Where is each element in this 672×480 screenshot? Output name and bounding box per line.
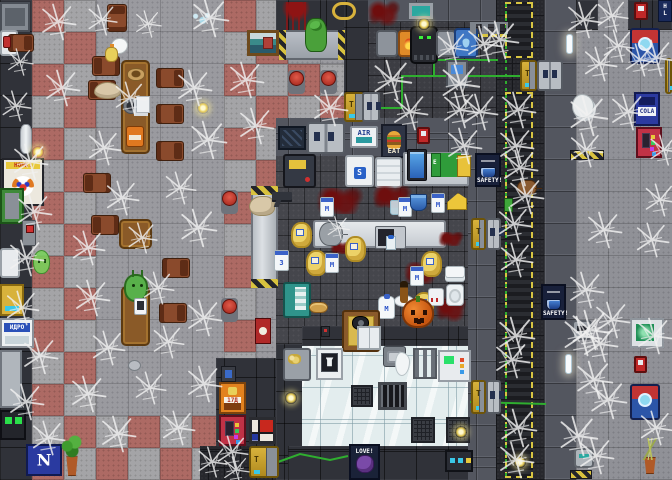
vendor-cola-label: COLA <box>638 107 656 116</box>
wood-chair[interactable] <box>156 104 184 124</box>
floor-tile <box>160 416 192 448</box>
machine-popcorn[interactable] <box>283 348 311 381</box>
floor-tile <box>32 96 64 128</box>
bot-clean[interactable] <box>574 448 594 468</box>
spark <box>455 426 467 438</box>
floor-tile <box>160 448 192 480</box>
jar-blue[interactable] <box>386 236 396 250</box>
door-yellow-label: T <box>349 101 354 108</box>
floor-tile <box>64 128 96 160</box>
grate[interactable] <box>351 385 373 407</box>
door-double[interactable] <box>307 122 345 154</box>
door-gray[interactable] <box>537 60 563 91</box>
machine-bluered[interactable] <box>630 28 660 64</box>
poster-love-label: LOVE! <box>351 448 378 455</box>
floor-tile <box>32 0 64 32</box>
door-yellow[interactable]: T <box>520 60 537 91</box>
vendor-hydro[interactable]: ИДРО <box>0 318 34 348</box>
stool-red[interactable] <box>288 70 305 94</box>
floor-tile <box>32 32 64 64</box>
door-gray[interactable] <box>486 380 501 414</box>
chicken[interactable] <box>291 222 312 248</box>
gun[interactable] <box>272 192 292 202</box>
milk[interactable]: M <box>320 197 334 217</box>
painting-landscape[interactable] <box>247 30 279 56</box>
air-top[interactable] <box>408 2 434 20</box>
wood-chair[interactable] <box>8 34 34 52</box>
rat-gray[interactable] <box>319 222 343 246</box>
cyborg-black[interactable] <box>410 26 438 64</box>
machine-bluered[interactable] <box>630 384 660 420</box>
poster-safety[interactable]: SAFETY! <box>541 284 566 320</box>
item-green[interactable] <box>504 198 513 212</box>
door-gray[interactable] <box>486 218 501 250</box>
floor-tile <box>96 416 128 448</box>
floor-tile <box>64 96 96 128</box>
pot-papers[interactable] <box>123 94 150 124</box>
floor-tile <box>32 384 64 416</box>
green-cans[interactable]: E <box>431 151 459 179</box>
hazard-strip <box>570 470 592 479</box>
door-yellow-label: T <box>525 70 530 77</box>
conveyor <box>505 92 533 478</box>
plant-dead[interactable] <box>638 438 662 474</box>
grate[interactable] <box>411 417 435 443</box>
milk-label: M <box>321 206 333 213</box>
game-viewport: HONK!ИДРОNTAIREATSESAFETY!MMMM3MMLOVE!17… <box>0 0 672 480</box>
poster-honk-label: HONK! <box>6 162 40 169</box>
enzyme-label: 3 <box>275 260 288 267</box>
locker-yellow[interactable] <box>0 284 24 316</box>
chicken[interactable] <box>421 251 442 277</box>
hazard-strip <box>570 150 604 160</box>
floor-tile <box>64 384 96 416</box>
light-tube <box>565 354 572 374</box>
debris-white <box>572 94 594 118</box>
plates[interactable] <box>445 266 465 278</box>
pumpkin[interactable] <box>402 298 434 328</box>
floor-tile <box>32 288 64 320</box>
floor-tile <box>64 256 96 288</box>
floor-tile <box>64 0 96 32</box>
floor-tile <box>128 416 160 448</box>
wood-chair[interactable] <box>159 303 187 323</box>
rack[interactable] <box>413 348 437 379</box>
tank-gray[interactable] <box>436 30 456 57</box>
floor-tile <box>64 320 96 352</box>
locker-pill[interactable] <box>332 2 356 20</box>
fridge-white[interactable] <box>375 157 402 188</box>
floor-tile <box>224 64 256 96</box>
spark <box>197 102 209 114</box>
blood-splat <box>368 0 400 26</box>
green-cans-label: E <box>433 159 437 166</box>
slime[interactable] <box>33 250 50 274</box>
glass-shards <box>192 12 210 26</box>
vendor-hydro-label: ИДРО <box>4 323 30 332</box>
wall-dark <box>576 0 598 30</box>
wood-chair[interactable] <box>107 4 127 32</box>
stool-red[interactable] <box>221 298 238 322</box>
spark <box>32 146 44 158</box>
spark <box>285 392 297 404</box>
smartfridge[interactable] <box>283 282 311 318</box>
milk[interactable]: M <box>325 253 339 273</box>
vendor-snack[interactable] <box>219 415 246 446</box>
vendor-snack[interactable] <box>636 127 662 158</box>
sign-partial[interactable]: H L <box>658 0 672 22</box>
canister-white[interactable] <box>20 124 32 154</box>
board-gray[interactable] <box>0 350 22 408</box>
poster-flag-label: N <box>28 451 60 470</box>
stool-red[interactable] <box>320 70 337 94</box>
bucket-blue[interactable] <box>410 194 427 211</box>
machine-blue[interactable] <box>446 60 468 88</box>
air-monitor[interactable]: AIR <box>350 126 378 148</box>
conveyor <box>505 2 533 58</box>
machine-research[interactable] <box>630 318 664 348</box>
grille[interactable] <box>378 382 407 410</box>
processor-label: S <box>354 167 366 179</box>
door-yellow-label: T <box>254 456 259 463</box>
wood-chair[interactable] <box>156 68 184 88</box>
fire-alarm[interactable] <box>634 356 647 373</box>
vendor-orange[interactable]: 17Д <box>219 382 246 414</box>
vendor-cola[interactable]: COLA <box>634 92 660 126</box>
milk[interactable]: M <box>431 193 445 213</box>
chicken[interactable] <box>345 236 366 262</box>
door-yellow-label: T <box>476 228 481 235</box>
blood-drip <box>282 2 310 30</box>
door-yellow[interactable]: T <box>471 380 486 414</box>
bot-gray[interactable] <box>572 320 592 340</box>
spark <box>418 18 430 30</box>
pda[interactable] <box>407 149 427 181</box>
door-yellow[interactable] <box>665 58 672 94</box>
poster-love[interactable]: LOVE! <box>349 444 380 480</box>
plant-pot[interactable] <box>60 434 84 476</box>
wood-chair[interactable] <box>162 258 190 278</box>
floor-tile <box>32 64 64 96</box>
floor-tile <box>224 96 256 128</box>
vendor-dark[interactable] <box>283 154 316 188</box>
wood-chair[interactable] <box>91 215 119 235</box>
milk-label: M <box>399 206 411 213</box>
floor-tile <box>96 448 128 480</box>
poster-small-red[interactable] <box>255 318 271 344</box>
floor-tile <box>64 352 96 384</box>
tank-gray[interactable] <box>376 30 398 57</box>
floor-tile <box>224 320 256 352</box>
door-yellow[interactable]: T <box>344 92 364 122</box>
chips[interactable] <box>126 126 144 147</box>
sign-partial-label: H L <box>659 3 671 17</box>
milk-label: M <box>432 202 444 209</box>
door-gray[interactable] <box>362 92 380 122</box>
floor-tile <box>32 352 64 384</box>
item-red[interactable] <box>3 36 11 48</box>
poster-safety[interactable]: SAFETY! <box>475 153 501 187</box>
painting-mondrian[interactable] <box>249 417 276 444</box>
poster-flag[interactable]: N <box>26 444 62 476</box>
floor-tile <box>128 448 160 480</box>
bread[interactable] <box>309 302 328 313</box>
pie-tan <box>94 82 121 99</box>
poster-safety-label: SAFETY! <box>543 310 564 317</box>
enzyme[interactable]: 3 <box>274 250 289 271</box>
machine-white[interactable] <box>0 248 20 278</box>
floor-tile <box>224 128 256 160</box>
fire-alarm[interactable] <box>417 127 430 144</box>
door-yellow[interactable]: T <box>249 446 279 478</box>
light-tube <box>566 34 573 54</box>
wood-table[interactable] <box>119 219 152 249</box>
air-monitor-label: AIR <box>352 130 376 137</box>
hatch-dark[interactable] <box>278 126 306 150</box>
stool-red[interactable] <box>221 190 238 214</box>
chicken[interactable] <box>306 250 327 276</box>
console-blue[interactable] <box>445 450 473 472</box>
wood-chair[interactable] <box>83 173 111 193</box>
mouse-gray[interactable] <box>128 360 141 371</box>
spark <box>514 456 526 468</box>
floor-tile <box>224 0 256 32</box>
rat-brown[interactable] <box>517 180 537 195</box>
box-yellow[interactable] <box>457 155 471 177</box>
processor[interactable]: S <box>345 155 374 187</box>
washer[interactable] <box>316 348 343 380</box>
door-yellow-label: T <box>476 390 481 397</box>
floor-tile <box>32 320 64 352</box>
milk-label: M <box>326 262 338 269</box>
fire-alarm[interactable] <box>634 2 648 20</box>
poster-safety-label: SAFETY! <box>477 177 499 184</box>
wood-chair[interactable] <box>156 141 184 161</box>
door-yellow[interactable]: T <box>471 218 486 250</box>
floor-tile <box>256 64 288 96</box>
console-small[interactable] <box>221 366 236 382</box>
console-green[interactable] <box>0 410 26 440</box>
milk-jug-label: M <box>379 306 394 313</box>
machine-console[interactable] <box>438 350 471 382</box>
item-yellow[interactable] <box>105 47 118 62</box>
pipe-brackets <box>470 22 508 34</box>
light-switch[interactable] <box>321 326 330 337</box>
vendor-orange-label: 17Д <box>224 397 241 404</box>
blood <box>438 232 464 246</box>
dog-bowl[interactable] <box>127 68 145 81</box>
phone[interactable] <box>134 298 147 315</box>
poster-eat-label: EAT <box>383 148 405 155</box>
panel-red[interactable] <box>22 220 36 246</box>
door-white[interactable] <box>357 326 381 350</box>
toilet[interactable] <box>446 284 464 306</box>
milk-jug[interactable]: M <box>378 296 395 319</box>
floor-tile <box>64 288 96 320</box>
machine-gray[interactable] <box>0 2 30 32</box>
locker-green[interactable] <box>0 188 24 224</box>
